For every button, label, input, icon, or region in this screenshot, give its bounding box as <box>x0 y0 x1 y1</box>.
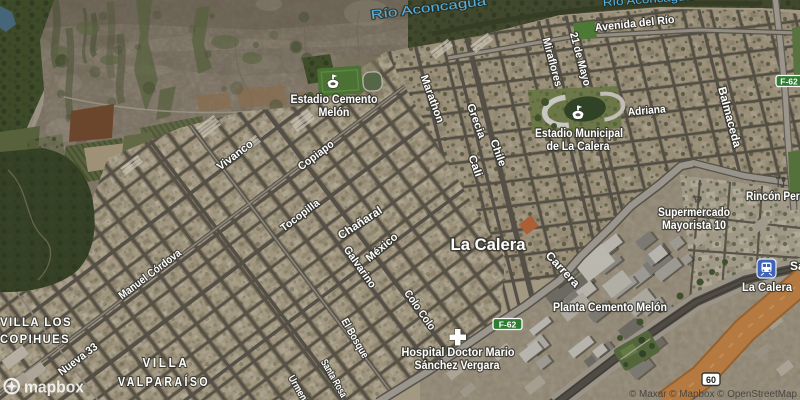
svg-text:F-62: F-62 <box>499 319 517 329</box>
svg-text:COPIHUES: COPIHUES <box>0 332 70 346</box>
svg-text:Melón: Melón <box>319 107 350 119</box>
svg-text:VALPARAÍSO: VALPARAÍSO <box>118 374 210 389</box>
svg-text:Mayorista 10: Mayorista 10 <box>662 220 726 232</box>
svg-text:San: San <box>790 259 800 273</box>
svg-text:F-62: F-62 <box>780 76 798 86</box>
svg-text:Hospital Doctor Mario: Hospital Doctor Mario <box>402 347 515 359</box>
svg-text:© Maxar © Mapbox © OpenStreetM: © Maxar © Mapbox © OpenStreetMap <box>629 389 797 400</box>
svg-text:Planta Cemento Melón: Planta Cemento Melón <box>553 300 667 314</box>
svg-text:La Calera: La Calera <box>451 236 527 254</box>
svg-text:VILLA LOS: VILLA LOS <box>0 315 72 329</box>
svg-text:La Calera: La Calera <box>742 280 792 294</box>
svg-text:Estadio Cemento: Estadio Cemento <box>291 94 378 106</box>
svg-text:de La Calera: de La Calera <box>547 139 610 153</box>
svg-text:Sánchez Vergara: Sánchez Vergara <box>415 360 501 372</box>
svg-text:VILLA: VILLA <box>143 355 190 370</box>
svg-text:60: 60 <box>706 375 716 385</box>
svg-text:mapbox: mapbox <box>24 378 84 397</box>
svg-text:Supermercado: Supermercado <box>658 207 730 219</box>
svg-text:Estadio Municipal: Estadio Municipal <box>535 126 623 140</box>
svg-text:Rincón Perú: Rincón Perú <box>746 191 800 203</box>
